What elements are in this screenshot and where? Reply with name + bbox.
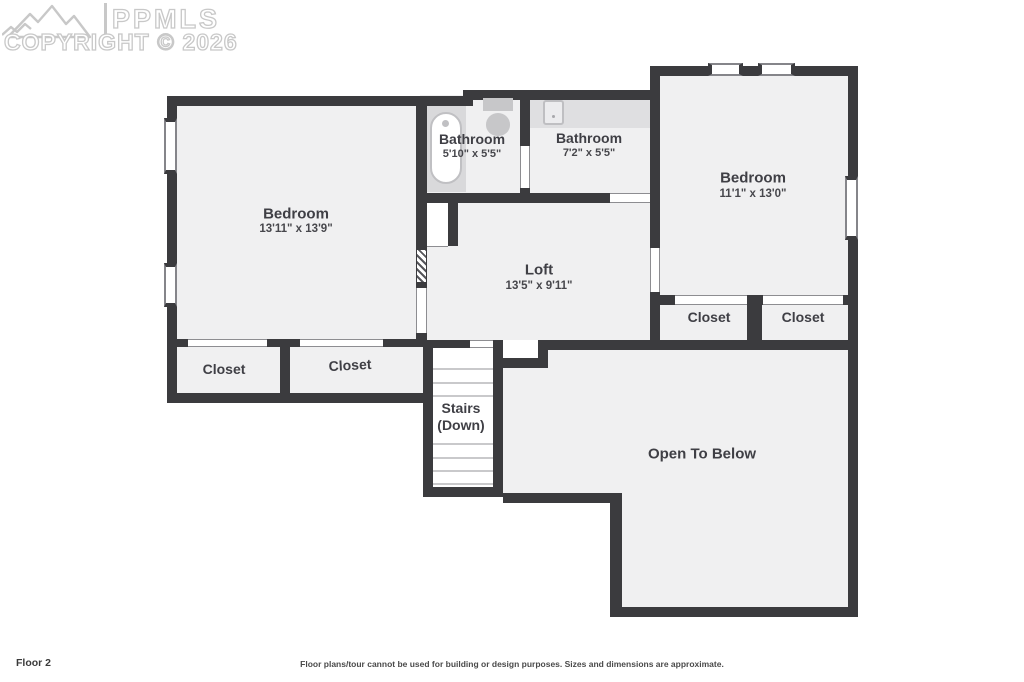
window [164,263,177,307]
bedroom-right-dims: 11'1" x 13'0" [720,188,787,200]
stair-tread [433,382,493,384]
door-opening [416,288,427,333]
stairs-label-down: (Down) [437,417,484,433]
wall [423,487,503,497]
bathtub-drain [442,120,449,127]
wall [423,340,433,497]
open-to-below-label: Open To Below [648,446,756,463]
closet-right-2-label: Closet [782,309,825,325]
wall [493,340,503,497]
stairs-label: Stairs [442,400,481,416]
watermark: PPMLS COPYRIGHT © 2026 [0,0,260,64]
stair-tread [433,483,493,485]
closet-left-1-label: Closet [203,361,246,377]
bathroom-right-dims: 7'2" x 5'5" [563,147,615,159]
watermark-copyright: COPYRIGHT © 2026 [4,29,238,56]
wall [427,340,470,348]
bathroom-left-label: Bathroom [439,131,505,147]
door-opening [675,295,747,305]
wall [503,358,548,368]
loft-dims: 13'5" x 9'11" [506,280,573,292]
sink-icon [543,100,564,125]
wall [280,347,290,393]
floor-plan-page: Bedroom 13'11" x 13'9" Bathroom 5'10" x … [0,0,1024,682]
door-opening [300,339,383,347]
toilet-icon [483,98,513,111]
wall [650,66,858,76]
wall [650,66,660,350]
disclaimer-text: Floor plans/tour cannot be used for buil… [300,659,724,669]
door-opening [520,146,530,188]
window [164,118,177,174]
bathroom-right-label: Bathroom [556,130,622,146]
wall [503,493,622,503]
void-notch [503,340,538,358]
wall [610,493,622,617]
door-opening [610,193,650,203]
door-opening [188,339,267,347]
floor-open-to-below [615,490,853,612]
window [845,176,858,240]
stair-tread [433,457,493,459]
closet-left-2-label: Closet [328,356,372,374]
bedroom-left-dims: 13'11" x 13'9" [259,223,332,235]
floor-open-to-below [538,345,853,493]
sink-drain [552,115,555,118]
wall [167,393,433,403]
window [758,63,795,76]
bedroom-left-label: Bedroom [263,206,329,223]
stair-tread [433,443,493,445]
stair-tread [433,368,493,370]
door-opening [763,295,843,305]
floor-label: Floor 2 [16,657,51,669]
stair-tread [433,470,493,472]
bathroom-left-dims: 5'10" x 5'5" [443,148,501,160]
closet-right-1-label: Closet [688,309,731,325]
door-opening [650,248,660,292]
stair-opening [470,340,493,348]
loft-label: Loft [525,262,553,279]
stair-tread [433,395,493,397]
window [708,63,743,76]
floor-open-to-below [503,362,548,493]
floor-left-block [177,100,428,398]
bedroom-right-label: Bedroom [720,170,786,187]
wall [538,340,858,350]
wall [448,203,458,246]
wall [463,90,473,106]
wall [610,607,858,617]
hallway-opening [427,203,448,247]
pocket-door [416,249,427,283]
